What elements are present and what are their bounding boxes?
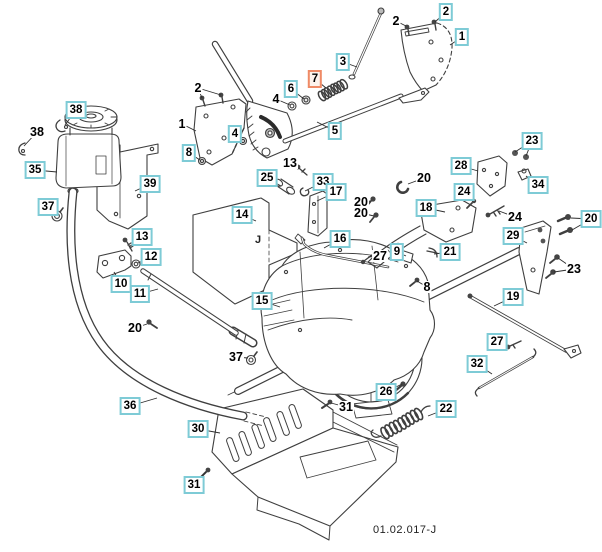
part-callout-37-ref: 37 — [228, 351, 244, 363]
part-callout-2[interactable]: 2 — [439, 3, 453, 21]
part-callout-36[interactable]: 36 — [120, 397, 141, 415]
part-callout-37[interactable]: 37 — [38, 198, 59, 216]
part-callout-24[interactable]: 24 — [454, 183, 475, 201]
part-callout-17[interactable]: 17 — [326, 183, 347, 201]
part-callout-14[interactable]: 14 — [232, 206, 253, 224]
part-callout-2-ref: 2 — [392, 15, 401, 27]
part-callout-20[interactable]: 20 — [581, 210, 602, 228]
part-callout-15[interactable]: 15 — [252, 292, 273, 310]
part-callout-27-ref: 27 — [372, 250, 388, 262]
part-callout-21[interactable]: 21 — [440, 243, 461, 261]
part-callout-6[interactable]: 6 — [284, 80, 298, 98]
part-callout-19[interactable]: 19 — [503, 288, 524, 306]
part-callout-39[interactable]: 39 — [140, 175, 161, 193]
part-callout-2-ref: 2 — [194, 82, 203, 94]
part-callout-35[interactable]: 35 — [25, 161, 46, 179]
part-callout-20-ref: 20 — [416, 172, 432, 184]
part-callout-16[interactable]: 16 — [330, 230, 351, 248]
part-callout-8[interactable]: 8 — [182, 144, 196, 162]
part-callout-25[interactable]: 25 — [257, 169, 278, 187]
part-callout-5[interactable]: 5 — [328, 122, 342, 140]
part-callout-31-ref: 31 — [338, 401, 354, 413]
part-callout-27[interactable]: 27 — [487, 333, 508, 351]
part-callout-38-ref: 38 — [29, 126, 45, 138]
part-callout-13-ref: 13 — [282, 157, 298, 169]
part-callout-12[interactable]: 12 — [141, 248, 162, 266]
part-callout-18[interactable]: 18 — [416, 199, 437, 217]
part-callout-7[interactable]: 7 — [308, 70, 322, 88]
part-callout-9[interactable]: 9 — [390, 243, 404, 261]
part-callout-31[interactable]: 31 — [184, 476, 205, 494]
part-callout-38[interactable]: 38 — [66, 101, 87, 119]
part-callout-28[interactable]: 28 — [451, 157, 472, 175]
part-callout-23[interactable]: 23 — [522, 132, 543, 150]
part-callout-24-ref: 24 — [507, 211, 523, 223]
part-callout-8-ref: 8 — [423, 281, 432, 293]
part-callout-13[interactable]: 13 — [132, 228, 153, 246]
parts-diagram-page: J — [0, 0, 602, 552]
part-callout-3[interactable]: 3 — [336, 53, 350, 71]
part-callout-20-ref: 20 — [353, 207, 369, 219]
part-callout-34[interactable]: 34 — [528, 176, 549, 194]
part-callout-20-ref: 20 — [127, 322, 143, 334]
part-callout-1[interactable]: 1 — [455, 28, 469, 46]
part-callout-11[interactable]: 11 — [130, 285, 150, 303]
callout-layer: 2184462213753838353739131210112513331714… — [0, 0, 602, 552]
part-callout-4[interactable]: 4 — [228, 125, 242, 143]
part-callout-10[interactable]: 10 — [111, 275, 132, 293]
part-callout-22[interactable]: 22 — [436, 400, 457, 418]
part-callout-26[interactable]: 26 — [376, 383, 397, 401]
part-callout-23-ref: 23 — [566, 263, 582, 275]
part-callout-29[interactable]: 29 — [503, 227, 524, 245]
part-callout-30[interactable]: 30 — [188, 420, 209, 438]
part-callout-32[interactable]: 32 — [467, 355, 488, 373]
part-callout-4-ref: 4 — [272, 93, 281, 105]
part-callout-1-ref: 1 — [178, 118, 187, 130]
